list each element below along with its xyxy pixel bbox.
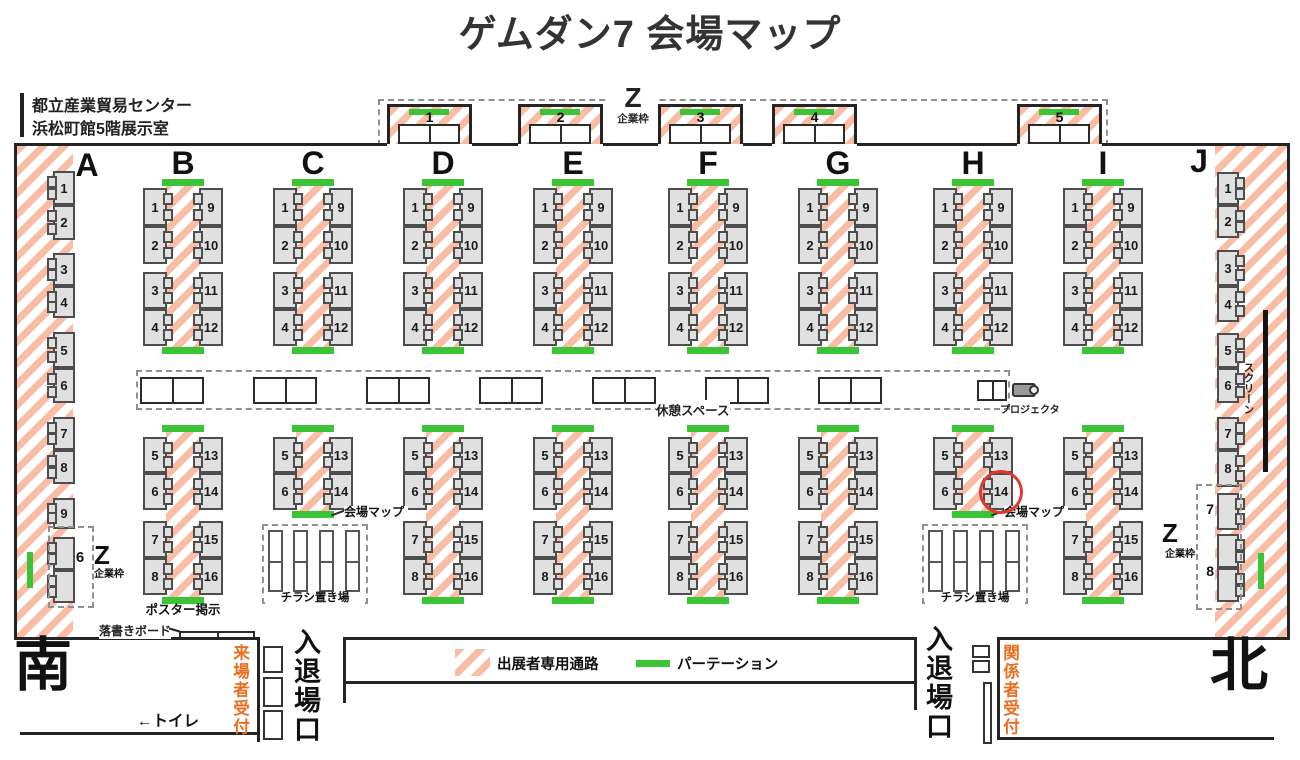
booth-B-13: 13 [199,437,223,473]
booth-H-11: 11 [989,272,1013,309]
wall-segment [603,143,658,146]
visitor-reception-label: 来場者受付 [231,644,248,740]
partition-bar [292,179,334,186]
booth-F-8: 8 [668,558,692,595]
booth-A-4: 4 [53,286,75,318]
booth-B-9: 9 [199,188,223,226]
booth-E-9: 9 [589,188,613,226]
booth-B-6: 6 [143,473,167,510]
booth-C-9: 9 [329,188,353,226]
corporate-booth-number: 8 [1198,564,1214,580]
booth-F-15: 15 [724,521,748,558]
booth-G-7: 7 [798,521,822,558]
projector-lens-icon [1029,385,1039,395]
corporate-booth-table [1028,124,1090,144]
booth-I-5: 5 [1063,437,1087,473]
rest-table [977,380,1007,401]
north-label: 北 [1210,636,1268,697]
booth-E-6: 6 [533,473,557,510]
partition-bar [422,425,464,432]
booth-I-1: 1 [1063,188,1087,226]
booth-B-8: 8 [143,558,167,595]
booth-H-6: 6 [933,473,957,510]
booth-C-13: 13 [329,437,353,473]
booth-B-3: 3 [143,272,167,309]
booth-B-1: 1 [143,188,167,226]
highlight-circle [979,470,1023,514]
page-title: ゲムダン7 会場マップ [0,3,1300,58]
screen-label: スクリーン [1243,362,1254,422]
projector-label: プロジェクタ [1000,401,1060,416]
partition-bar [162,179,204,186]
booth-C-1: 1 [273,188,297,226]
booth-A-9: 9 [53,498,75,529]
wall-segment [472,143,518,146]
wall-segment [343,637,917,640]
booth-D-15: 15 [459,521,483,558]
booth-F-9: 9 [724,188,748,226]
wall-segment [1287,143,1290,640]
toilet-label: ←トイレ [137,709,199,731]
booth-A-6: 6 [53,368,75,403]
z-label: Z [1162,520,1194,548]
booth-F-4: 4 [668,309,692,346]
booth-F-13: 13 [724,437,748,473]
partition-bar [817,597,859,604]
booth-H-5: 5 [933,437,957,473]
flyer-table [928,530,943,592]
booth-B-10: 10 [199,226,223,264]
booth-F-2: 2 [668,226,692,264]
booth-G-12: 12 [854,309,878,346]
booth-E-8: 8 [533,558,557,595]
partition-bar [952,425,994,432]
wall-segment [345,681,917,684]
booth-J-1: 1 [1217,172,1239,205]
booth-I-7: 7 [1063,521,1087,558]
booth-E-3: 3 [533,272,557,309]
booth-E-5: 5 [533,437,557,473]
wall-segment [257,637,260,742]
booth-E-12: 12 [589,309,613,346]
wall-segment [857,143,1017,146]
wall-segment [14,143,17,640]
partition-bar [1082,347,1124,354]
corporate-booth-number: 2 [518,110,603,126]
flyer-table [953,530,968,592]
booth-B-16: 16 [199,558,223,595]
partition-bar [1082,425,1124,432]
booth-D-1: 1 [403,188,427,226]
booth-F-1: 1 [668,188,692,226]
booth-H-3: 3 [933,272,957,309]
booth-D-8: 8 [403,558,427,595]
corporate-zone-outline [48,526,94,608]
booth-I-6: 6 [1063,473,1087,510]
booth-J-5: 5 [1217,333,1239,368]
partition-bar [952,179,994,186]
venue-room: 浜松町館5階展示室 [32,115,169,139]
graffiti-board-label: 落書きボード [99,622,171,639]
booth-H-4: 4 [933,309,957,346]
booth-H-13: 13 [989,437,1013,473]
rest-table [140,377,204,404]
booth-G-1: 1 [798,188,822,226]
booth-C-10: 10 [329,226,353,264]
corporate-sub-label: 企業枠 [1155,550,1195,562]
booth-B-7: 7 [143,521,167,558]
reception-desk [263,677,283,707]
flyer-table [319,530,334,592]
booth-F-5: 5 [668,437,692,473]
booth-H-9: 9 [989,188,1013,226]
booth-B-4: 4 [143,309,167,346]
booth-G-5: 5 [798,437,822,473]
booth-F-10: 10 [724,226,748,264]
south-label: 南 [14,636,72,697]
wall-segment [14,143,387,146]
column-letter-I: I [1071,147,1135,181]
booth-E-1: 1 [533,188,557,226]
rest-table [253,377,317,404]
partition-bar [552,597,594,604]
z-label: Z [609,84,657,112]
partition-bar [162,425,204,432]
booth-G-10: 10 [854,226,878,264]
booth-B-5: 5 [143,437,167,473]
flyer-table [979,530,994,592]
booth-D-4: 4 [403,309,427,346]
partition-bar [952,511,994,518]
legend-partition-swatch [636,660,670,667]
corporate-booth-table [669,124,731,144]
booth-G-2: 2 [798,226,822,264]
partition-bar [292,425,334,432]
corporate-booth-number: 5 [1017,110,1102,126]
booth-G-3: 3 [798,272,822,309]
wall-segment [343,637,346,703]
booth-B-12: 12 [199,309,223,346]
column-letter-D: D [411,147,475,181]
corporate-booth-table [398,124,460,144]
corporate-booth-table [783,124,845,144]
partition-bar [687,179,729,186]
corporate-booth-number: 3 [658,110,743,126]
booth-A-7: 7 [53,417,75,450]
booth-I-10: 10 [1119,226,1143,264]
booth-C-5: 5 [273,437,297,473]
corporate-sub-label: 企業枠 [609,114,657,125]
wall-segment [914,637,917,710]
booth-D-7: 7 [403,521,427,558]
wall-segment [997,637,1000,740]
booth-E-2: 2 [533,226,557,264]
partition-bar [552,425,594,432]
booth-I-16: 16 [1119,558,1143,595]
legend-passage-label: 出展者専用通路 [497,653,599,674]
corporate-zone-label: Z 企業枠 [609,84,657,125]
booth-G-8: 8 [798,558,822,595]
staff-reception-label: 関係者受付 [1001,644,1018,740]
booth-B-15: 15 [199,521,223,558]
booth-B-14: 14 [199,473,223,510]
booth-E-14: 14 [589,473,613,510]
booth-J-2: 2 [1217,205,1239,238]
wall-segment [743,143,772,146]
partition-bar [552,179,594,186]
booth-E-7: 7 [533,521,557,558]
booth-D-3: 3 [403,272,427,309]
partition-bar [552,347,594,354]
z-label: Z [94,542,124,570]
rest-space-label: 休憩スペース [656,400,730,419]
booth-F-14: 14 [724,473,748,510]
booth-E-13: 13 [589,437,613,473]
booth-I-3: 3 [1063,272,1087,309]
partition-bar [1258,553,1264,589]
booth-A-8: 8 [53,450,75,484]
booth-A-1: 1 [53,171,75,205]
booth-E-10: 10 [589,226,613,264]
booth-D-5: 5 [403,437,427,473]
booth-I-2: 2 [1063,226,1087,264]
corporate-booth-number: 7 [1198,502,1214,518]
partition-bar [1082,597,1124,604]
partition-bar [687,597,729,604]
corporate-booth-number: 4 [772,110,857,126]
booth-G-13: 13 [854,437,878,473]
booth-F-3: 3 [668,272,692,309]
partition-bar [817,179,859,186]
booth-A-5: 5 [53,332,75,368]
rest-table [818,377,882,404]
flyer-table [268,530,283,592]
booth-C-6: 6 [273,473,297,510]
booth-G-14: 14 [854,473,878,510]
booth-H-10: 10 [989,226,1013,264]
wall-segment [997,737,1274,740]
legend-partition-label: パーテーション [677,653,778,674]
wall-segment [20,732,260,735]
corporate-booth-table [529,124,591,144]
booth-D-14: 14 [459,473,483,510]
booth-A-2: 2 [53,205,75,240]
entrance-right-label: 入退場口 [923,625,950,745]
partition-bar [292,511,334,518]
partition-bar [1082,179,1124,186]
rest-table [592,377,656,404]
booth-G-16: 16 [854,558,878,595]
booth-J-4: 4 [1217,286,1239,322]
booth-J-3: 3 [1217,250,1239,286]
poster-area-label: ポスター掲示 [139,604,227,618]
booth-G-11: 11 [854,272,878,309]
corporate-sub-label: 企業枠 [94,570,134,582]
booth-D-13: 13 [459,437,483,473]
flyer-area-label: チラシ置き場 [925,592,1025,605]
booth-C-4: 4 [273,309,297,346]
column-letter-G: G [806,147,870,181]
booth-F-12: 12 [724,309,748,346]
booth-E-16: 16 [589,558,613,595]
booth-G-4: 4 [798,309,822,346]
booth-C-3: 3 [273,272,297,309]
booth-I-13: 13 [1119,437,1143,473]
rest-table [479,377,543,404]
wall-segment [1102,143,1290,146]
booth-I-8: 8 [1063,558,1087,595]
booth-D-6: 6 [403,473,427,510]
partition-bar [292,347,334,354]
partition-bar [162,347,204,354]
flyer-table [1005,530,1020,592]
reception-desk [263,710,283,740]
booth-D-11: 11 [459,272,483,309]
flyer-area-label: チラシ置き場 [265,592,365,605]
booth-D-9: 9 [459,188,483,226]
rest-table [366,377,430,404]
booth-A-3: 3 [53,253,75,286]
booth-I-4: 4 [1063,309,1087,346]
venue-map-label: 会場マップ [344,506,408,519]
booth-I-15: 15 [1119,521,1143,558]
booth-H-2: 2 [933,226,957,264]
booth-F-16: 16 [724,558,748,595]
partition-bar [27,552,33,588]
booth-I-14: 14 [1119,473,1143,510]
booth-C-2: 2 [273,226,297,264]
booth-D-10: 10 [459,226,483,264]
booth-F-6: 6 [668,473,692,510]
reception-desk [983,682,992,744]
reception-desk [972,660,990,673]
reception-desk [972,645,990,658]
venue-header-bar [20,93,24,137]
booth-E-15: 15 [589,521,613,558]
screen-bar [1263,310,1268,472]
legend-passage-swatch [455,649,490,676]
booth-J-8: 8 [1217,450,1239,487]
corporate-booth-number: 1 [387,110,472,126]
column-letter-E: E [541,147,605,181]
booth-G-9: 9 [854,188,878,226]
booth-E-11: 11 [589,272,613,309]
column-letter-F: F [676,147,740,181]
booth-J-6: 6 [1217,368,1239,403]
partition-bar [817,347,859,354]
venue-name: 都立産業貿易センター [32,92,192,116]
partition-bar [422,597,464,604]
partition-bar [687,347,729,354]
column-letter-B: B [151,147,215,181]
flyer-table [293,530,308,592]
booth-C-12: 12 [329,309,353,346]
booth-B-11: 11 [199,272,223,309]
booth-D-16: 16 [459,558,483,595]
booth-D-2: 2 [403,226,427,264]
booth-B-2: 2 [143,226,167,264]
booth-H-12: 12 [989,309,1013,346]
booth-I-9: 9 [1119,188,1143,226]
booth-G-6: 6 [798,473,822,510]
partition-bar [422,347,464,354]
booth-J-7: 7 [1217,417,1239,450]
column-letter-H: H [941,147,1005,181]
booth-C-11: 11 [329,272,353,309]
booth-I-12: 12 [1119,309,1143,346]
flyer-table [345,530,360,592]
booth-I-11: 11 [1119,272,1143,309]
partition-bar [687,425,729,432]
reception-desk [263,646,283,673]
booth-H-1: 1 [933,188,957,226]
partition-bar [422,179,464,186]
booth-D-12: 12 [459,309,483,346]
booth-F-7: 7 [668,521,692,558]
partition-bar [952,347,994,354]
booth-F-11: 11 [724,272,748,309]
booth-E-4: 4 [533,309,557,346]
corporate-booth-number: 6 [70,550,90,566]
corporate-zone-outline [378,99,1108,146]
column-letter-C: C [281,147,345,181]
entrance-left-label: 入退場口 [291,628,318,748]
booth-G-15: 15 [854,521,878,558]
venue-map: ゲムダン7 会場マップ 都立産業貿易センター 浜松町館5階展示室 Z 企業枠 休… [0,0,1300,760]
partition-bar [817,425,859,432]
